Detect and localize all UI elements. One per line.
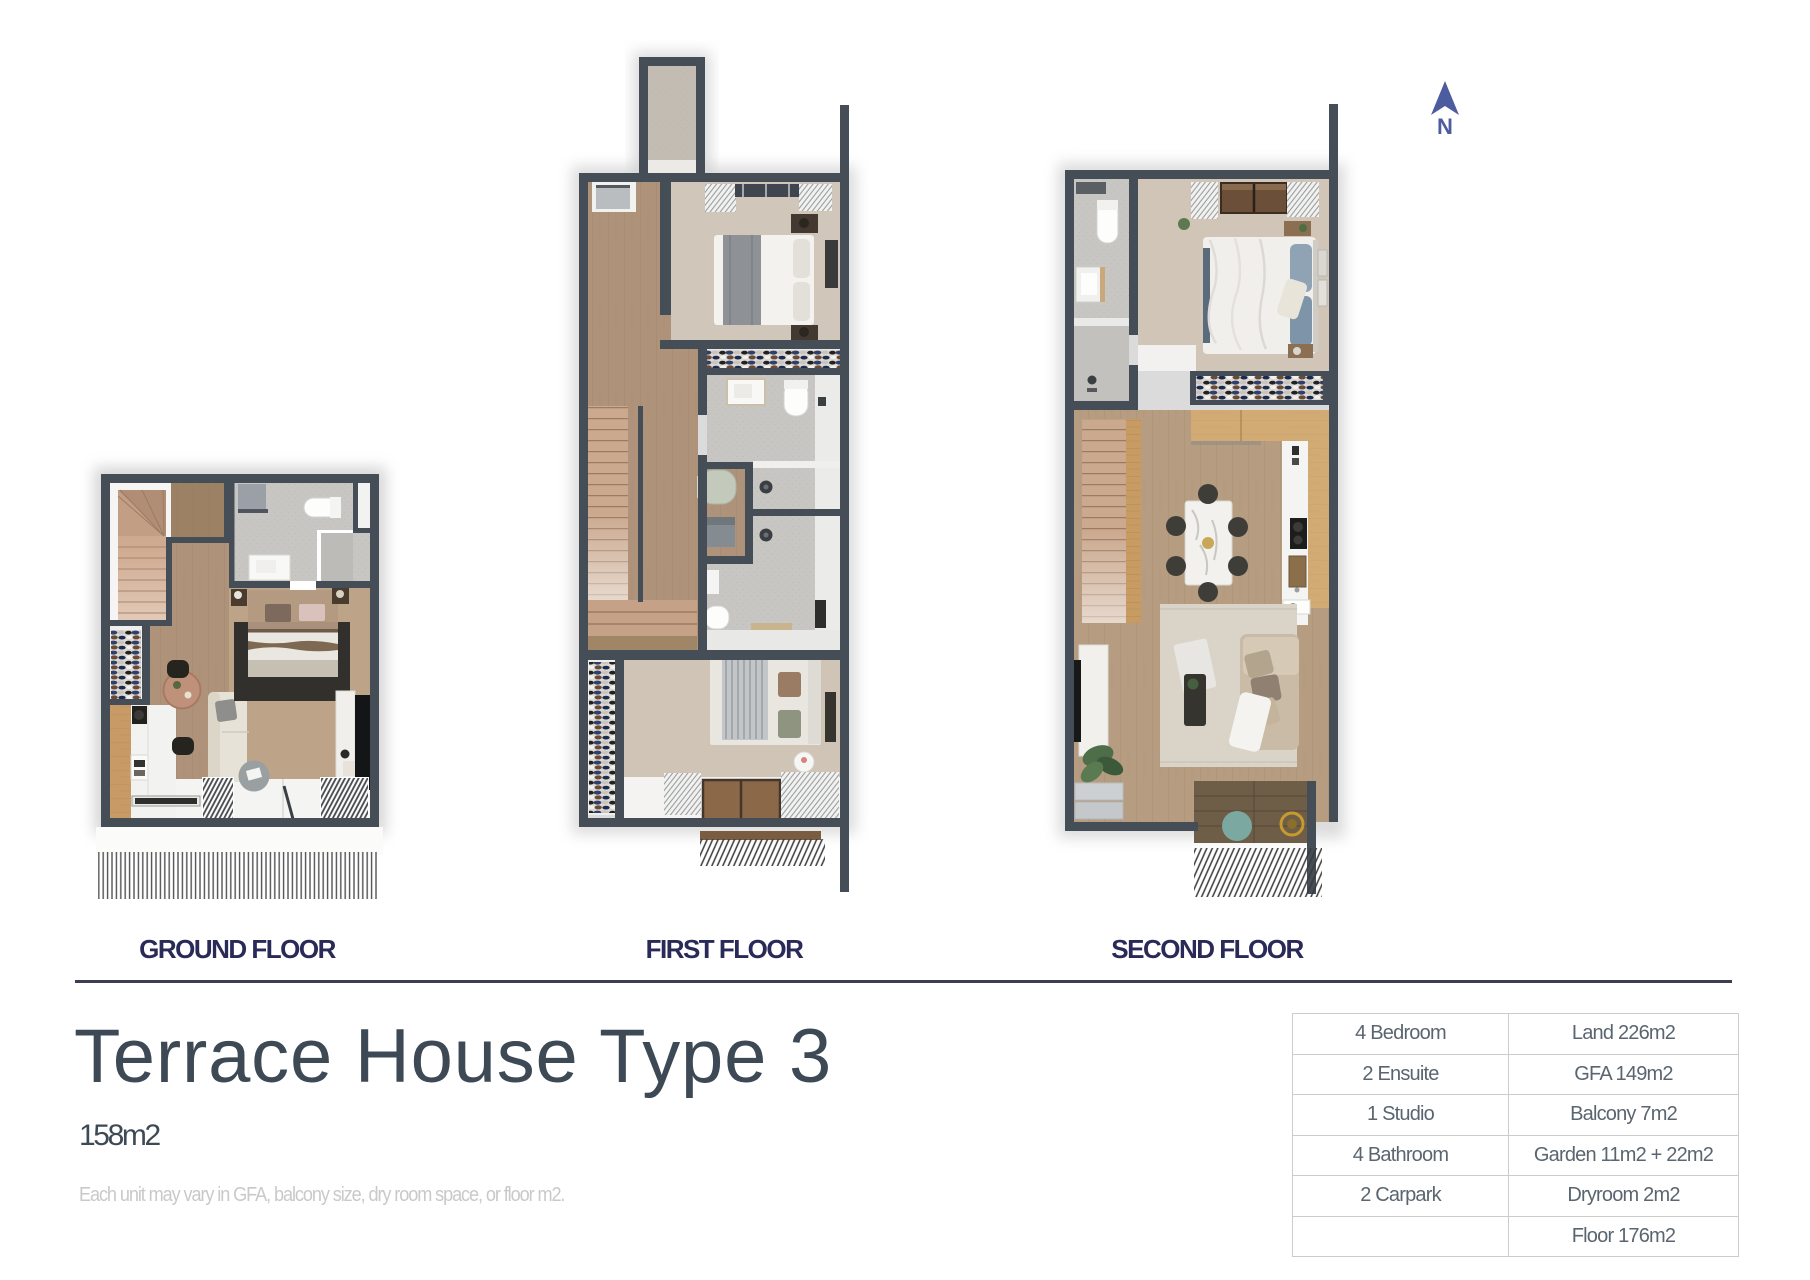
svg-text:N: N <box>1437 114 1453 139</box>
